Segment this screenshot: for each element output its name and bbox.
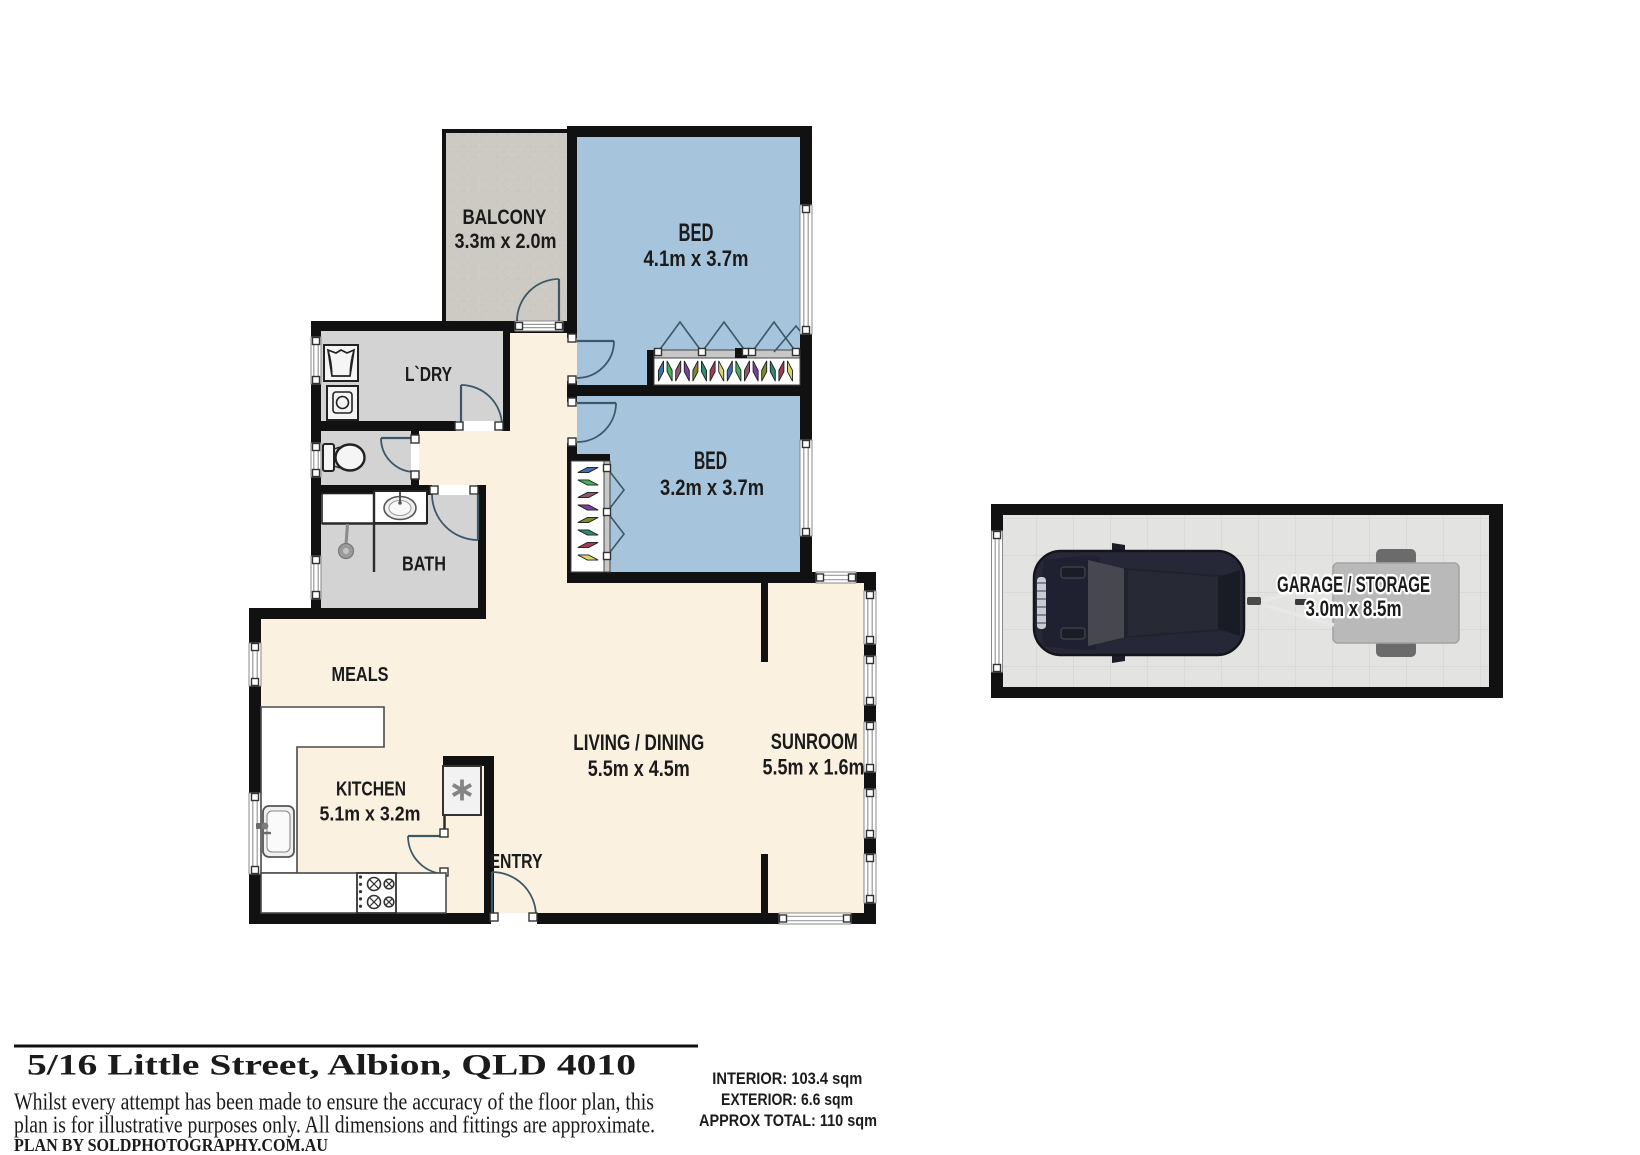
svg-text:INTERIOR: 103.4 sqm: INTERIOR: 103.4 sqm [712, 1069, 862, 1088]
svg-text:APPROX TOTAL: 110 sqm: APPROX TOTAL: 110 sqm [699, 1111, 877, 1130]
svg-text:KITCHEN: KITCHEN [336, 778, 406, 801]
svg-text:5.5m x 1.6m: 5.5m x 1.6m [763, 755, 865, 780]
svg-text:3.2m x 3.7m: 3.2m x 3.7m [660, 475, 764, 500]
svg-text:3.0m x 8.5m: 3.0m x 8.5m [1306, 596, 1402, 621]
svg-text:GARAGE / STORAGE: GARAGE / STORAGE [1277, 572, 1430, 597]
svg-text:BALCONY: BALCONY [463, 205, 547, 229]
svg-text:MEALS: MEALS [332, 663, 389, 686]
svg-text:EXTERIOR: 6.6 sqm: EXTERIOR: 6.6 sqm [721, 1090, 853, 1109]
svg-text:5.1m x 3.2m: 5.1m x 3.2m [320, 804, 421, 826]
svg-text:BATH: BATH [402, 553, 446, 576]
svg-text:BED: BED [694, 447, 727, 475]
svg-text:3.3m x 2.0m: 3.3m x 2.0m [455, 230, 557, 253]
svg-text:LIVING / DINING: LIVING / DINING [573, 730, 704, 755]
svg-text:4.1m x 3.7m: 4.1m x 3.7m [644, 246, 749, 271]
svg-text:ENTRY: ENTRY [490, 850, 543, 873]
svg-text:PLAN BY SOLDPHOTOGRAPHY.COM.AU: PLAN BY SOLDPHOTOGRAPHY.COM.AU [14, 1135, 328, 1155]
svg-text:5/16 Little Street, Albion, QL: 5/16 Little Street, Albion, QLD 4010 [27, 1049, 636, 1082]
svg-text:BED: BED [679, 219, 714, 247]
svg-text:SUNROOM: SUNROOM [771, 729, 858, 754]
svg-text:5.5m x 4.5m: 5.5m x 4.5m [588, 756, 690, 781]
svg-text:L`DRY: L`DRY [405, 363, 452, 386]
